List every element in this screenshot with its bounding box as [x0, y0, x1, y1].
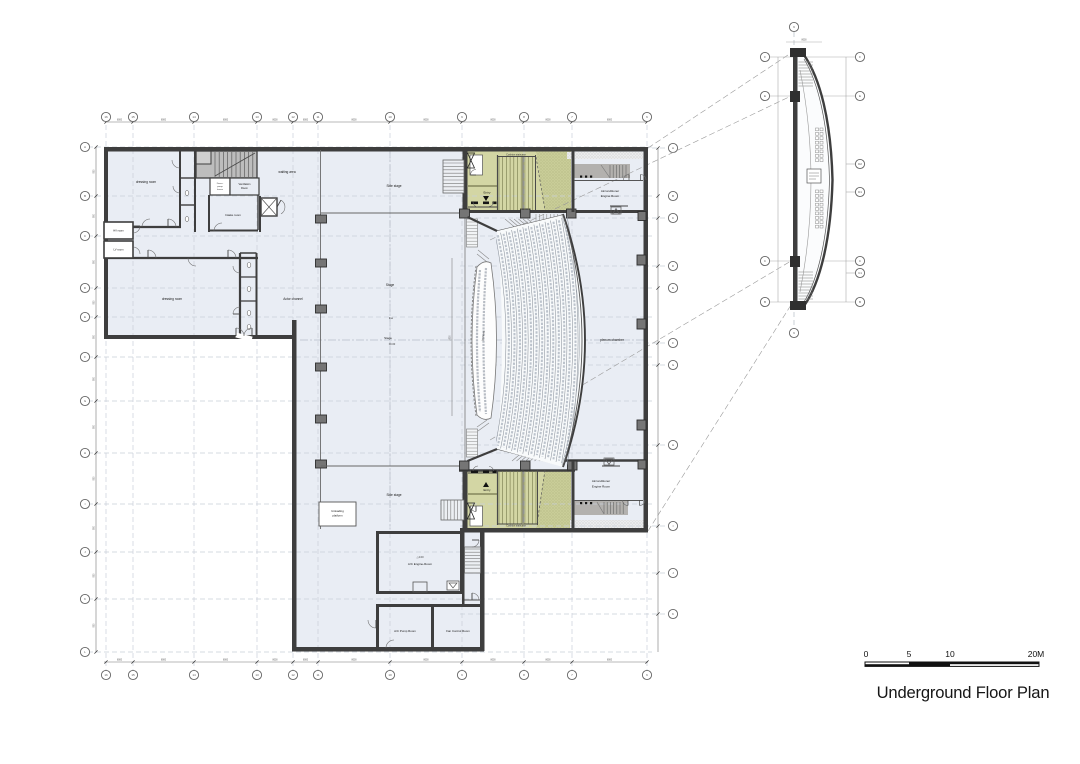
svg-text:HV room: HV room — [113, 229, 124, 233]
svg-text:A: A — [84, 145, 86, 149]
svg-text:8000: 8000 — [303, 660, 309, 662]
svg-text:11: 11 — [316, 673, 319, 677]
svg-text:C1: C1 — [858, 271, 862, 275]
svg-text:F: F — [672, 341, 674, 345]
svg-text:△4.00: △4.00 — [416, 555, 424, 559]
svg-text:10: 10 — [945, 649, 955, 659]
svg-text:16: 16 — [104, 115, 108, 119]
svg-text:20M: 20M — [1028, 649, 1045, 659]
svg-text:H: H — [672, 443, 674, 447]
svg-text:8000: 8000 — [223, 660, 229, 662]
svg-text:K: K — [84, 597, 86, 601]
svg-text:±0.00: ±0.00 — [389, 342, 396, 346]
svg-text:Entry: Entry — [483, 191, 491, 195]
svg-text:Cushion staircase: Cushion staircase — [506, 154, 526, 157]
svg-text:Entry: Entry — [483, 488, 491, 492]
svg-text:Stage: Stage — [384, 336, 392, 340]
svg-text:line: line — [389, 316, 394, 320]
svg-text:13: 13 — [255, 673, 259, 677]
svg-text:B: B — [859, 300, 861, 304]
svg-text:8000: 8000 — [490, 660, 496, 662]
svg-text:Stage: Stage — [386, 283, 395, 287]
svg-text:E: E — [672, 286, 674, 290]
svg-text:9800: 9800 — [450, 335, 452, 341]
svg-text:12: 12 — [291, 673, 295, 677]
svg-text:Room: Room — [241, 186, 248, 190]
svg-text:Engine Room: Engine Room — [601, 194, 620, 198]
svg-text:14: 14 — [192, 115, 196, 119]
svg-text:Dress-: Dress- — [217, 182, 224, 185]
svg-text:Airconditioner: Airconditioner — [592, 479, 610, 483]
svg-text:8000: 8000 — [117, 660, 123, 662]
svg-text:A/C Engine-Room: A/C Engine-Room — [408, 562, 433, 566]
svg-text:10: 10 — [388, 673, 392, 677]
svg-text:8000: 8000 — [272, 660, 278, 662]
svg-text:LV room: LV room — [114, 248, 125, 252]
svg-text:8000: 8000 — [607, 120, 613, 122]
svg-text:B: B — [672, 194, 674, 198]
svg-text:8000: 8000 — [351, 120, 357, 122]
svg-text:B: B — [764, 300, 766, 304]
svg-text:Intake room: Intake room — [225, 213, 241, 217]
svg-text:5: 5 — [907, 649, 912, 659]
svg-text:8000: 8000 — [223, 120, 229, 122]
svg-text:8000: 8000 — [607, 660, 613, 662]
svg-text:11: 11 — [316, 115, 319, 119]
svg-text:plenum chamber: plenum chamber — [600, 338, 625, 342]
svg-text:H: H — [84, 451, 86, 455]
svg-text:F: F — [859, 55, 861, 59]
svg-text:F: F — [764, 55, 766, 59]
svg-text:waiting area: waiting area — [278, 170, 295, 174]
svg-text:B: B — [84, 194, 86, 198]
svg-text:8000: 8000 — [423, 120, 429, 122]
svg-text:pump: pump — [217, 186, 223, 188]
svg-text:14: 14 — [192, 673, 196, 677]
svg-text:Actor channel: Actor channel — [283, 297, 303, 301]
svg-text:Engine Room: Engine Room — [592, 485, 611, 489]
svg-text:13: 13 — [255, 115, 259, 119]
svg-text:8000: 8000 — [161, 120, 167, 122]
svg-text:F: F — [84, 355, 86, 359]
svg-text:8000: 8000 — [117, 120, 123, 122]
svg-text:16: 16 — [104, 673, 108, 677]
svg-text:Underground Floor Plan: Underground Floor Plan — [877, 683, 1050, 702]
svg-text:Side stage: Side stage — [386, 184, 401, 188]
svg-text:8000: 8000 — [351, 660, 357, 662]
svg-text:Side stage: Side stage — [386, 493, 401, 497]
svg-text:8000: 8000 — [545, 120, 551, 122]
svg-text:0: 0 — [864, 649, 869, 659]
svg-text:E: E — [84, 315, 86, 319]
svg-text:15: 15 — [131, 673, 135, 677]
svg-text:platform: platform — [332, 514, 343, 518]
svg-text:10: 10 — [388, 115, 392, 119]
svg-text:A: A — [672, 146, 674, 150]
svg-text:D1: D1 — [858, 190, 862, 194]
svg-text:8000: 8000 — [272, 120, 278, 122]
svg-text:A/C Pump Room: A/C Pump Room — [394, 629, 416, 633]
svg-text:D2: D2 — [858, 162, 862, 166]
svg-text:8000: 8000 — [545, 660, 551, 662]
svg-text:E: E — [764, 94, 766, 98]
svg-text:Fan Control Room: Fan Control Room — [446, 629, 470, 633]
svg-text:8000: 8000 — [801, 40, 807, 42]
svg-text:15: 15 — [131, 115, 135, 119]
svg-text:12: 12 — [291, 115, 295, 119]
svg-text:Unloading: Unloading — [331, 509, 344, 513]
svg-text:E: E — [859, 94, 861, 98]
svg-text:Airconditioner: Airconditioner — [601, 189, 619, 193]
svg-text:dressing room: dressing room — [162, 297, 183, 301]
svg-text:K: K — [672, 612, 674, 616]
svg-text:Cushion staircase: Cushion staircase — [506, 525, 526, 528]
svg-text:8000: 8000 — [423, 660, 429, 662]
svg-text:house: house — [217, 189, 224, 191]
svg-text:8000: 8000 — [161, 660, 167, 662]
svg-text:Ventilation: Ventilation — [239, 182, 252, 186]
svg-text:8000: 8000 — [490, 120, 496, 122]
svg-text:dressing room: dressing room — [136, 180, 157, 184]
svg-text:8000: 8000 — [303, 120, 309, 122]
